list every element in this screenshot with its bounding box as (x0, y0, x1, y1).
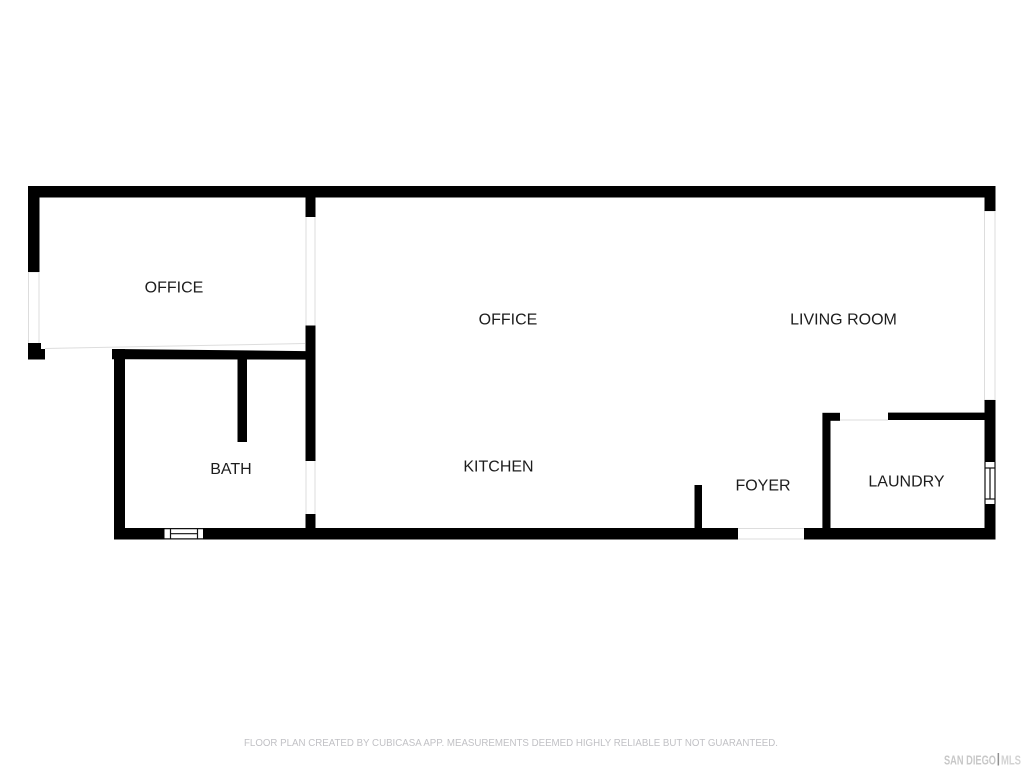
svg-text:BATH: BATH (210, 461, 251, 478)
svg-text:OFFICE: OFFICE (145, 280, 204, 297)
svg-text:FOYER: FOYER (735, 478, 790, 495)
svg-text:FLOOR PLAN CREATED BY CUBICASA: FLOOR PLAN CREATED BY CUBICASA APP. MEAS… (244, 738, 778, 749)
svg-text:OFFICE: OFFICE (479, 312, 538, 329)
svg-text:SAN DIEGO: SAN DIEGO (944, 753, 996, 768)
svg-text:KITCHEN: KITCHEN (463, 459, 533, 476)
svg-text:MLS: MLS (1001, 753, 1021, 768)
svg-text:LIVING ROOM: LIVING ROOM (790, 312, 897, 329)
svg-text:LAUNDRY: LAUNDRY (868, 474, 945, 491)
